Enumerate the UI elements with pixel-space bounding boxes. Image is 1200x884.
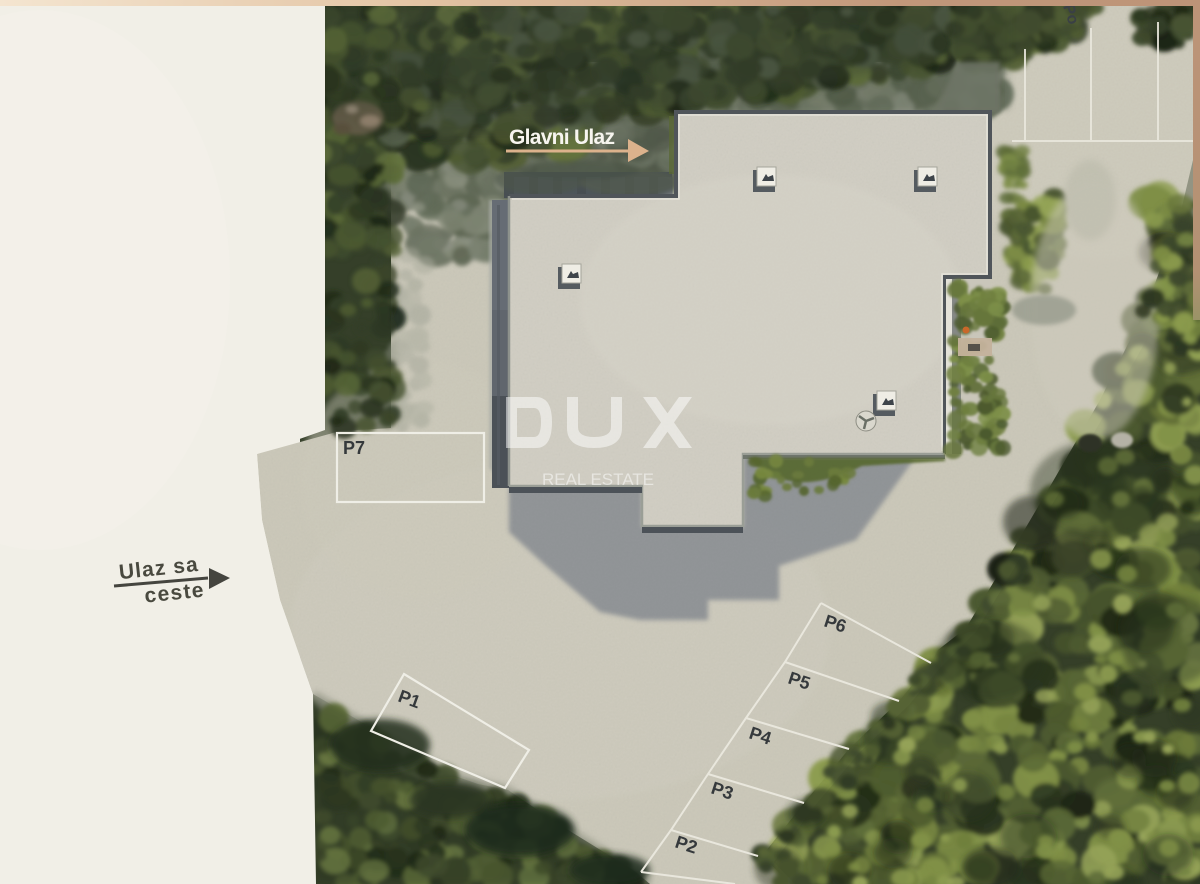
svg-text:Glavni Ulaz: Glavni Ulaz xyxy=(509,126,615,149)
svg-text:P7: P7 xyxy=(343,438,365,458)
svg-text:REAL ESTATE: REAL ESTATE xyxy=(542,470,658,489)
